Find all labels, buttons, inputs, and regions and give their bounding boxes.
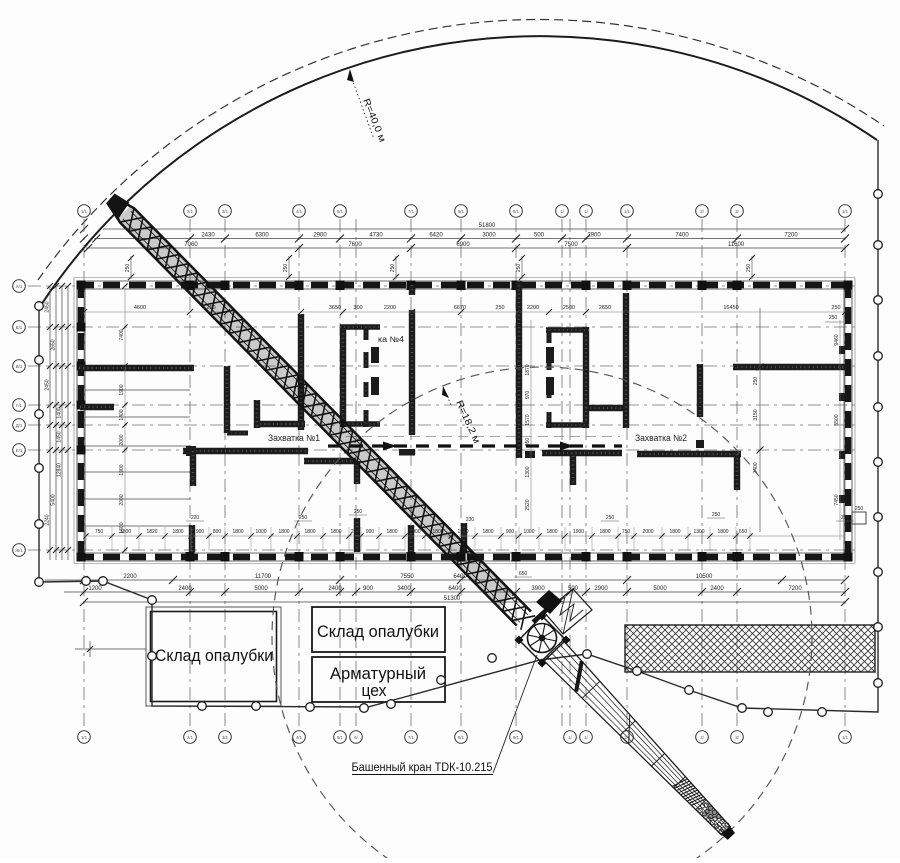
svg-text:4730: 4730 [369, 233, 383, 239]
svg-text:250: 250 [606, 515, 615, 521]
svg-text:900: 900 [363, 586, 374, 592]
svg-text:3150: 3150 [753, 409, 759, 420]
svg-text:220: 220 [191, 515, 200, 521]
svg-text:1600: 1600 [119, 522, 125, 533]
svg-text:1200: 1200 [88, 586, 102, 592]
svg-text:7550: 7550 [400, 574, 414, 580]
svg-text:250: 250 [299, 515, 308, 521]
svg-text:1450: 1450 [57, 431, 63, 442]
svg-text:2200: 2200 [384, 305, 396, 311]
svg-text:11700: 11700 [255, 574, 272, 580]
svg-text:2200: 2200 [123, 574, 137, 580]
svg-text:1800: 1800 [304, 529, 315, 535]
svg-text:2450: 2450 [45, 301, 51, 312]
svg-text:В/1: В/1 [16, 364, 23, 369]
svg-text:2650: 2650 [51, 339, 57, 350]
svg-text:1/1: 1/1 [842, 209, 849, 214]
svg-text:2400: 2400 [328, 586, 342, 592]
svg-text:2240: 2240 [45, 514, 51, 525]
svg-text:250: 250 [855, 506, 864, 512]
svg-text:1900: 1900 [119, 384, 125, 395]
svg-text:2400: 2400 [178, 586, 192, 592]
svg-text:2000: 2000 [119, 494, 125, 505]
svg-text:1800: 1800 [330, 529, 341, 535]
svg-text:51300: 51300 [444, 596, 461, 602]
svg-text:250: 250 [746, 264, 752, 273]
svg-text:1800: 1800 [599, 529, 610, 535]
svg-text:7500: 7500 [564, 242, 578, 248]
svg-text:7200: 7200 [784, 233, 798, 239]
svg-text:2/1: 2/1 [187, 209, 194, 214]
svg-text:1/1: 1/1 [624, 209, 631, 214]
svg-text:5/1: 5/1 [337, 735, 344, 740]
svg-text:500: 500 [534, 233, 545, 239]
svg-text:250: 250 [390, 264, 396, 273]
svg-text:7400: 7400 [675, 233, 689, 239]
svg-text:4/1: 4/1 [296, 735, 303, 740]
svg-text:1570: 1570 [525, 414, 531, 425]
svg-text:Захватка №2: Захватка №2 [635, 433, 687, 443]
svg-text:6670: 6670 [454, 305, 466, 311]
svg-text:7600: 7600 [348, 242, 362, 248]
svg-text:3/1: 3/1 [222, 209, 229, 214]
svg-text:250: 250 [841, 515, 850, 521]
svg-text:5000: 5000 [254, 586, 268, 592]
svg-text:250: 250 [753, 377, 759, 386]
svg-text:1800: 1800 [482, 529, 493, 535]
svg-text:6900: 6900 [456, 242, 470, 248]
svg-text:2500: 2500 [563, 305, 575, 311]
svg-text:1800: 1800 [386, 529, 397, 535]
svg-text:8/1: 8/1 [458, 735, 465, 740]
svg-text:250: 250 [283, 264, 289, 273]
svg-text:3900: 3900 [531, 586, 545, 592]
svg-text:16450: 16450 [723, 305, 738, 311]
svg-text:250: 250 [354, 509, 363, 515]
svg-text:Склад опалубки: Склад опалубки [317, 622, 439, 641]
svg-text:Склад опалубки: Склад опалубки [155, 646, 273, 665]
svg-text:1/1: 1/1 [842, 735, 849, 740]
svg-text:4/1: 4/1 [296, 209, 303, 214]
svg-text:2450: 2450 [45, 379, 51, 390]
svg-text:250: 250 [125, 264, 131, 273]
svg-text:250: 250 [829, 315, 838, 321]
svg-text:1000: 1000 [255, 529, 266, 535]
svg-text:1/1: 1/1 [81, 209, 88, 214]
svg-text:Е/1: Е/1 [16, 448, 23, 453]
svg-text:5000: 5000 [653, 586, 667, 592]
svg-text:7060: 7060 [184, 242, 198, 248]
svg-text:3/1: 3/1 [222, 735, 229, 740]
svg-text:3650: 3650 [329, 305, 341, 311]
svg-text:220: 220 [351, 529, 360, 535]
svg-text:9/1: 9/1 [513, 209, 520, 214]
svg-text:250: 250 [516, 264, 522, 273]
svg-text:1800: 1800 [717, 529, 728, 535]
svg-text:Башенный кран ТDК-10.215: Башенный кран ТDК-10.215 [352, 762, 493, 774]
svg-text:650: 650 [519, 571, 528, 577]
svg-text:250: 250 [712, 512, 721, 518]
svg-text:650: 650 [739, 529, 748, 535]
svg-text:6300: 6300 [255, 233, 269, 239]
svg-text:1000: 1000 [409, 529, 420, 535]
svg-text:2000: 2000 [642, 529, 653, 535]
svg-text:1/1: 1/1 [81, 735, 88, 740]
svg-text:1820: 1820 [146, 529, 157, 535]
svg-text:900: 900 [196, 529, 205, 535]
svg-text:7450: 7450 [834, 494, 840, 505]
svg-text:2900: 2900 [594, 586, 608, 592]
svg-text:750: 750 [95, 529, 104, 535]
svg-text:1900: 1900 [119, 464, 125, 475]
svg-text:900: 900 [366, 529, 375, 535]
svg-text:2200: 2200 [527, 305, 539, 311]
svg-text:7200: 7200 [788, 586, 802, 592]
svg-text:2900: 2900 [313, 233, 327, 239]
svg-text:1300: 1300 [525, 466, 531, 477]
svg-text:51800: 51800 [479, 223, 496, 229]
svg-text:1900: 1900 [573, 529, 584, 535]
svg-text:800: 800 [213, 529, 222, 535]
svg-text:6400: 6400 [448, 586, 462, 592]
svg-text:1500: 1500 [457, 529, 468, 535]
svg-text:10500: 10500 [696, 574, 713, 580]
svg-text:2650: 2650 [599, 305, 611, 311]
svg-text:А/1: А/1 [16, 284, 23, 289]
svg-text:цех: цех [362, 681, 387, 700]
svg-text:300: 300 [353, 305, 362, 311]
svg-text:9/1: 9/1 [513, 735, 520, 740]
svg-text:1800: 1800 [669, 529, 680, 535]
svg-text:5500: 5500 [834, 414, 840, 425]
svg-text:1800: 1800 [546, 529, 557, 535]
svg-text:1000: 1000 [523, 529, 534, 535]
svg-text:2430: 2430 [201, 233, 215, 239]
svg-text:11600: 11600 [728, 242, 745, 248]
svg-text:1870: 1870 [525, 364, 531, 375]
svg-text:1800: 1800 [172, 529, 183, 535]
svg-text:9460: 9460 [834, 334, 840, 345]
svg-text:970: 970 [525, 391, 531, 400]
svg-text:1300: 1300 [693, 529, 704, 535]
svg-text:1800: 1800 [278, 529, 289, 535]
svg-text:5/1: 5/1 [337, 209, 344, 214]
svg-text:3400: 3400 [397, 586, 411, 592]
svg-text:250: 250 [831, 305, 840, 311]
svg-text:250: 250 [495, 305, 504, 311]
svg-text:1400: 1400 [119, 409, 125, 420]
svg-text:2400: 2400 [710, 586, 724, 592]
svg-text:5400: 5400 [51, 494, 57, 505]
svg-text:230: 230 [466, 517, 475, 523]
svg-text:Д/1: Д/1 [16, 423, 23, 428]
svg-text:4600: 4600 [134, 305, 146, 311]
svg-text:7400: 7400 [119, 329, 125, 340]
svg-text:3000: 3000 [482, 233, 496, 239]
svg-text:750: 750 [622, 529, 631, 535]
svg-text:7/1: 7/1 [408, 735, 415, 740]
svg-text:Ж/1: Ж/1 [15, 548, 23, 553]
svg-text:Б/1: Б/1 [16, 325, 23, 330]
svg-text:7/1: 7/1 [408, 209, 415, 214]
svg-text:900: 900 [506, 529, 515, 535]
svg-text:1400: 1400 [57, 407, 63, 418]
svg-text:Г/1: Г/1 [16, 403, 23, 408]
svg-text:Захватка №1: Захватка №1 [268, 433, 320, 443]
svg-text:ка №4: ка №4 [378, 335, 405, 344]
svg-text:1800: 1800 [232, 529, 243, 535]
svg-text:2000: 2000 [119, 434, 125, 445]
svg-text:2900: 2900 [587, 233, 601, 239]
svg-text:12840: 12840 [57, 463, 63, 477]
svg-text:6420: 6420 [429, 233, 443, 239]
svg-text:2/1: 2/1 [187, 735, 194, 740]
svg-text:2520: 2520 [525, 499, 531, 510]
svg-text:8/1: 8/1 [458, 209, 465, 214]
